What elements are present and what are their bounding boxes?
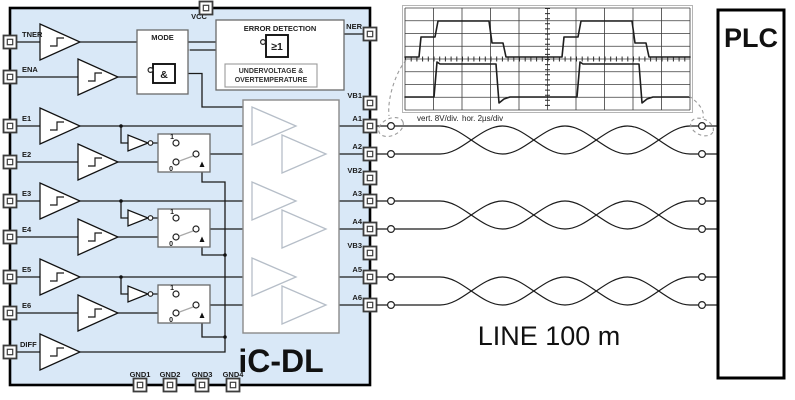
pin-label-vb3: VB3 — [347, 241, 362, 250]
undervoltage-line2: OVERTEMPERATURE — [235, 77, 308, 84]
mux1-zero-label: 0 — [169, 166, 173, 173]
line-driver-block — [243, 100, 339, 333]
pin-vb1 — [364, 97, 377, 110]
pin-a2 — [364, 148, 377, 161]
chip-name: iC-DL — [238, 343, 323, 379]
pin-a1 — [364, 120, 377, 133]
pin-label-e5: E5 — [22, 265, 31, 274]
pin-label-ner: NER — [346, 22, 362, 31]
pin-label-a3: A3 — [352, 189, 362, 198]
pin-label-e1: E1 — [22, 114, 31, 123]
scope-caption-vertical: vert. 8V/div. — [417, 114, 459, 123]
undervoltage-line1: UNDERVOLTAGE & — [239, 68, 304, 75]
pin-label-a4: A4 — [352, 217, 362, 226]
error-detection-title: ERROR DETECTION — [244, 24, 317, 33]
pin-a6 — [364, 299, 377, 312]
pin-label-a6: A6 — [352, 293, 362, 302]
mode-title: MODE — [151, 33, 174, 42]
or-gate-label: ≥1 — [271, 41, 283, 53]
pin-a5 — [364, 271, 377, 284]
schematic-canvas: MODE & ERROR DETECTION ≥1 UNDERVOLTAGE &… — [0, 0, 795, 400]
pin-label-diff: DIFF — [20, 340, 37, 349]
twisted-pair-lines — [377, 123, 719, 309]
oscilloscope-inset: vert. 8V/div. hor. 2µs/div — [376, 6, 717, 141]
pin-gnd1 — [134, 379, 147, 392]
pin-label-ena: ENA — [22, 65, 38, 74]
plc-block: PLC — [718, 10, 784, 378]
mux3-zero-label: 0 — [169, 317, 173, 324]
pin-a3 — [364, 195, 377, 208]
scope-caption-horizontal: hor. 2µs/div — [462, 114, 503, 123]
and-gate-invert-bubble — [148, 68, 153, 73]
pin-label-e4: E4 — [22, 225, 32, 234]
pin-label-e3: E3 — [22, 189, 31, 198]
mux2-one-label: 1 — [170, 209, 174, 216]
pin-label-a1: A1 — [352, 114, 362, 123]
or-gate-invert-bubble — [261, 40, 266, 45]
pin-ner — [364, 28, 377, 41]
mux1-one-label: 1 — [170, 134, 174, 141]
pin-gnd4 — [227, 379, 240, 392]
schematic-page: MODE & ERROR DETECTION ≥1 UNDERVOLTAGE &… — [0, 0, 795, 400]
pin-tner — [4, 36, 17, 49]
plc-label: PLC — [724, 23, 778, 53]
pin-e4 — [4, 231, 17, 244]
pin-label-vb1: VB1 — [347, 91, 362, 100]
pin-e3 — [4, 195, 17, 208]
pin-vb2 — [364, 172, 377, 185]
error-detection-block: ERROR DETECTION ≥1 UNDERVOLTAGE & OVERTE… — [216, 20, 344, 90]
pin-e5 — [4, 271, 17, 284]
and-gate-label: & — [160, 69, 168, 81]
mux2-zero-label: 0 — [169, 241, 173, 248]
pin-gnd3 — [196, 379, 209, 392]
pin-label-e6: E6 — [22, 301, 31, 310]
mux3-one-label: 1 — [170, 285, 174, 292]
pin-e6 — [4, 307, 17, 320]
pin-diff — [4, 346, 17, 359]
pin-gnd2 — [164, 379, 177, 392]
pin-e1 — [4, 120, 17, 133]
line-length-label: LINE 100 m — [478, 321, 621, 351]
pin-label-tner: TNER — [22, 30, 43, 39]
pin-vb3 — [364, 247, 377, 260]
pin-a4 — [364, 223, 377, 236]
pin-label-vb2: VB2 — [347, 166, 362, 175]
pin-vcc — [200, 2, 213, 15]
pin-ena — [4, 71, 17, 84]
pin-e2 — [4, 156, 17, 169]
pin-label-a5: A5 — [352, 265, 362, 274]
pin-label-e2: E2 — [22, 150, 31, 159]
mode-block: MODE & — [137, 30, 188, 94]
pin-label-a2: A2 — [352, 142, 362, 151]
